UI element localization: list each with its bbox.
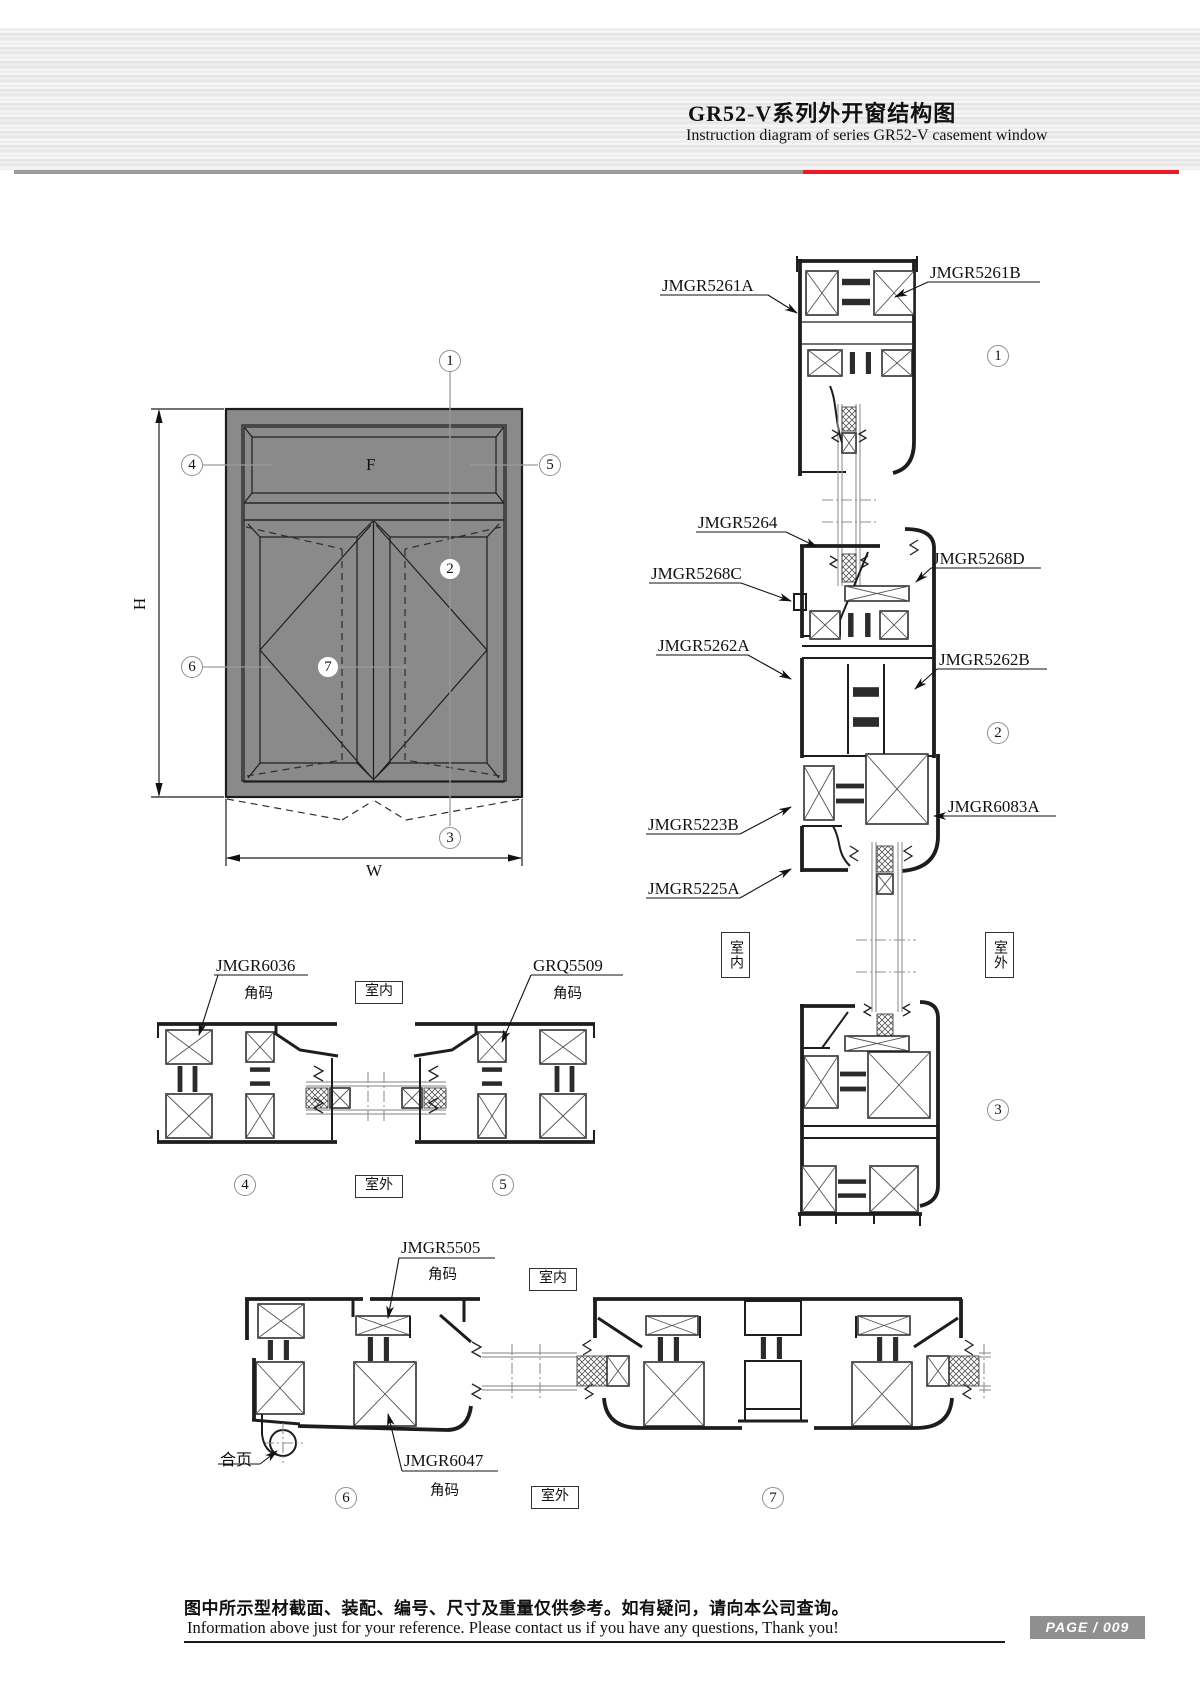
part-label-jmgr5225a: JMGR5225A xyxy=(648,879,740,899)
dimension-w-label: W xyxy=(366,861,382,881)
footer-note-zh: 图中所示型材截面、装配、编号、尺寸及重量仅供参考。如有疑问，请向本公司查询。 xyxy=(184,1594,849,1619)
elevation-drawing xyxy=(151,372,538,866)
part-label-jmgr6047: JMGR6047 xyxy=(404,1451,483,1471)
callout-5-elevation: 5 xyxy=(539,454,561,476)
corner-code-label-4: 角码 xyxy=(430,1479,459,1500)
callout-5-section: 5 xyxy=(492,1174,514,1196)
callout-2-elevation: 2 xyxy=(439,558,461,580)
callout-7-elevation: 7 xyxy=(317,656,339,678)
indoor-label-s45: 室内 xyxy=(355,981,403,1004)
footer-note-en: Information above just for your referenc… xyxy=(187,1618,839,1638)
hinge-label: 合页 xyxy=(220,1446,252,1470)
section-4-5-drawing xyxy=(157,1024,595,1142)
part-label-jmgr5268c: JMGR5268C xyxy=(651,564,742,584)
part-label-jmgr5268d: JMGR5268D xyxy=(933,549,1025,569)
fixed-panel-label: F xyxy=(366,455,375,475)
callout-6-section: 6 xyxy=(335,1487,357,1509)
part-label-jmgr6083a: JMGR6083A xyxy=(948,797,1040,817)
catalog-page: GR52-V系列外开窗结构图 Instruction diagram of se… xyxy=(0,0,1200,1697)
callout-6-elevation: 6 xyxy=(181,656,203,678)
callout-3-elevation: 3 xyxy=(439,827,461,849)
part-label-jmgr5223b: JMGR5223B xyxy=(648,815,739,835)
section-2-drawing xyxy=(794,529,938,872)
part-label-jmgr5262a: JMGR5262A xyxy=(658,636,750,656)
part-label-grq5509: GRQ5509 xyxy=(533,956,603,976)
part-label-jmgr6036: JMGR6036 xyxy=(216,956,295,976)
corner-code-label-2: 角码 xyxy=(553,982,582,1003)
dimension-h-label: H xyxy=(130,598,150,610)
corner-code-label-3: 角码 xyxy=(428,1263,457,1284)
callout-2-section: 2 xyxy=(987,722,1009,744)
indoor-label-s67: 室内 xyxy=(529,1268,577,1291)
part-label-jmgr5505: JMGR5505 xyxy=(401,1238,480,1258)
part-label-jmgr5261b: JMGR5261B xyxy=(930,263,1021,283)
callout-4-section: 4 xyxy=(234,1174,256,1196)
part-label-jmgr5261a: JMGR5261A xyxy=(662,276,754,296)
callout-3-section: 3 xyxy=(987,1099,1009,1121)
outdoor-label-vertical: 室外 xyxy=(985,932,1014,978)
callout-1-elevation: 1 xyxy=(439,350,461,372)
indoor-label-vertical: 室内 xyxy=(721,932,750,978)
structural-diagram xyxy=(0,0,1200,1697)
outdoor-label-s67: 室外 xyxy=(531,1486,579,1509)
outdoor-label-s45: 室外 xyxy=(355,1175,403,1198)
part-label-jmgr5264: JMGR5264 xyxy=(698,513,777,533)
section-6-7-drawing xyxy=(245,1299,991,1463)
part-label-jmgr5262b: JMGR5262B xyxy=(939,650,1030,670)
section-1-drawing xyxy=(797,256,917,476)
callout-7-section: 7 xyxy=(762,1487,784,1509)
section-3-drawing xyxy=(798,1002,938,1226)
footer-divider xyxy=(184,1641,1005,1643)
corner-code-label-1: 角码 xyxy=(244,982,273,1003)
callout-4-elevation: 4 xyxy=(181,454,203,476)
glass-column-upper xyxy=(822,404,878,586)
callout-1-section: 1 xyxy=(987,345,1009,367)
page-number-badge: PAGE / 009 xyxy=(1030,1616,1145,1639)
